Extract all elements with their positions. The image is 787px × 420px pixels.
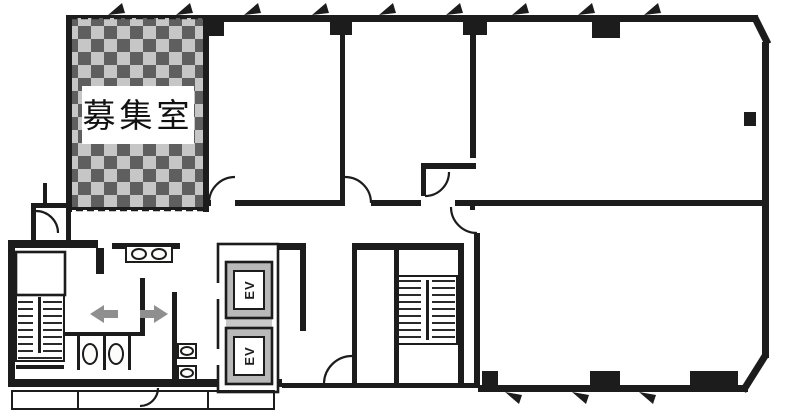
toilet-icon — [83, 344, 97, 364]
floor-plan-page: 募集室 — [0, 0, 787, 420]
vanity-counter — [126, 246, 172, 262]
window-tick-icon — [578, 3, 595, 15]
window-tick-icon — [312, 3, 329, 15]
door-arc-icon — [209, 177, 235, 203]
toilet-icon — [109, 344, 123, 364]
window-tick-icon — [639, 392, 656, 404]
door-arc-icon — [324, 356, 352, 384]
stairs-left — [16, 295, 64, 361]
left-service-block — [16, 252, 65, 369]
door-arc-icon — [451, 207, 477, 233]
stairs-right — [397, 276, 457, 344]
window-tick-icon — [446, 3, 463, 15]
elevator-2: EV — [226, 328, 272, 384]
vacant-room: 募集室 — [66, 15, 209, 212]
restrooms — [65, 246, 196, 387]
door-arc-icon — [345, 177, 371, 203]
elevator-label: EV — [242, 280, 257, 299]
window-tick-icon — [108, 3, 125, 15]
elevator-1: EV — [226, 262, 272, 318]
window-tick-icon — [176, 3, 193, 15]
window-tick-icon — [644, 3, 661, 15]
toilet-icon — [181, 369, 193, 377]
arrow-left-icon — [90, 305, 118, 323]
window-tick-icon — [244, 3, 261, 15]
window-tick-icon — [379, 3, 396, 15]
sink-icon — [132, 249, 146, 259]
toilet-icon — [181, 347, 193, 355]
window-tick-icon — [512, 3, 529, 15]
window-tick-icon — [505, 392, 522, 404]
vacant-room-label: 募集室 — [83, 97, 194, 134]
door-arc-icon — [425, 172, 449, 196]
partition-walls — [205, 18, 762, 385]
floor-plan-drawing: 募集室 — [0, 0, 787, 420]
door-arc-icon — [36, 211, 58, 233]
entry-arrows — [90, 305, 168, 323]
elevator-label: EV — [242, 346, 257, 365]
window-tick-icon — [572, 392, 589, 404]
sink-icon — [152, 249, 166, 259]
elevator-shaft: EV EV — [215, 244, 278, 392]
